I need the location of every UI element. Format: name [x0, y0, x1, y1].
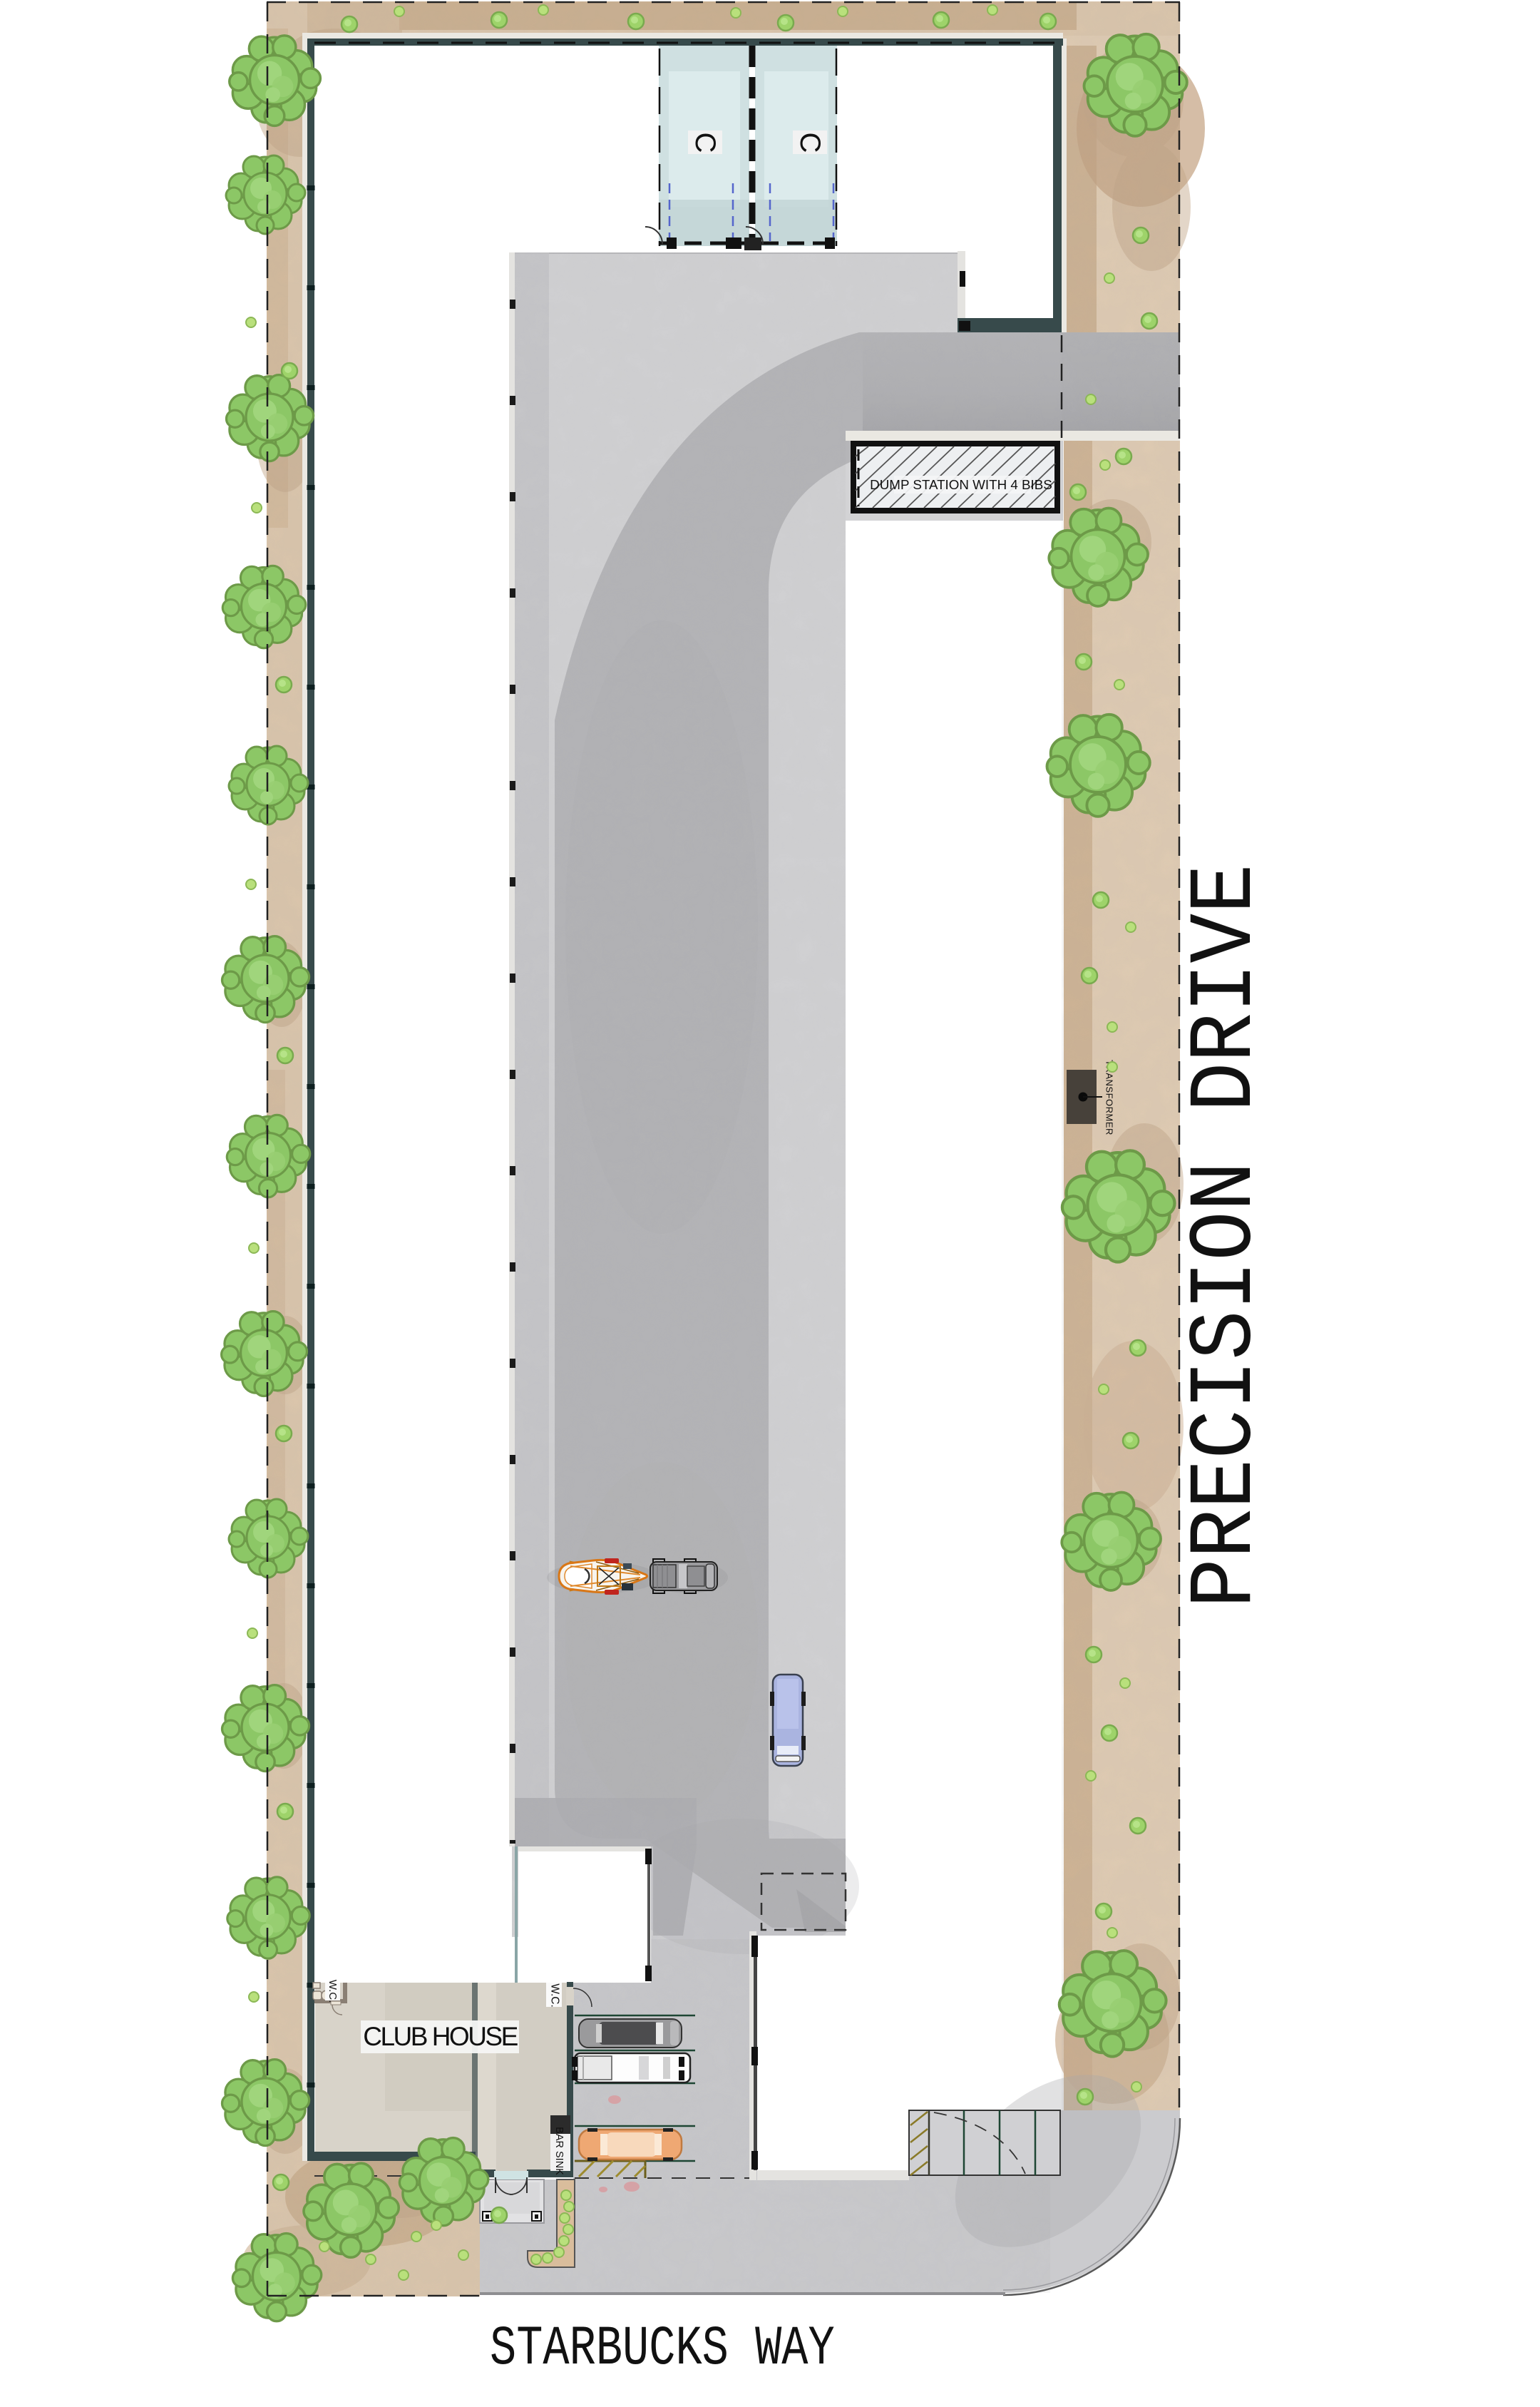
svg-text:W.C.: W.C.: [327, 1980, 339, 2003]
svg-text:CLUB HOUSE: CLUB HOUSE: [363, 2022, 518, 2051]
svg-text:C: C: [689, 133, 721, 153]
svg-text:W.C.: W.C.: [549, 1983, 561, 2008]
svg-text:PRECISION DRIVE: PRECISION DRIVE: [1176, 864, 1278, 1608]
svg-text:STARBUCKS WAY: STARBUCKS WAY: [490, 2318, 835, 2381]
svg-text:C: C: [794, 133, 826, 153]
svg-text:BAR SINK: BAR SINK: [553, 2127, 565, 2175]
svg-text:DUMP STATION WITH 4 BIBS: DUMP STATION WITH 4 BIBS: [870, 477, 1052, 492]
